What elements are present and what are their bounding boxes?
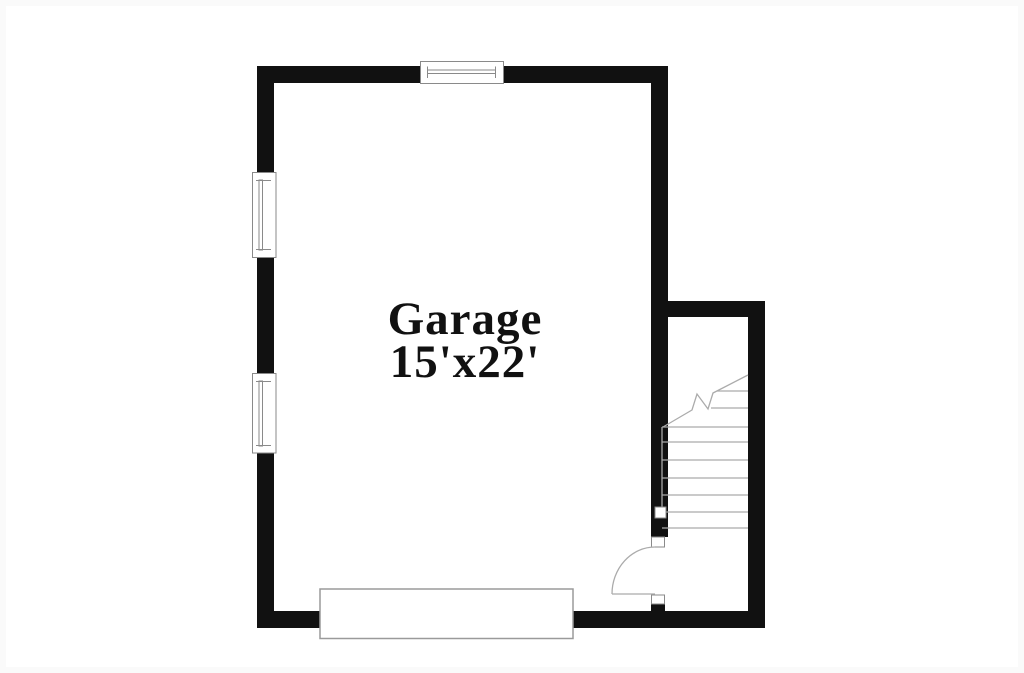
- door-jamb-top: [652, 537, 665, 547]
- left-window-upper-glazing: [259, 180, 263, 250]
- stair-break-line: [663, 375, 748, 427]
- door-jamb-bottom: [652, 595, 665, 604]
- left-window-upper-frame: [253, 173, 277, 258]
- stairwell-top-wall: [651, 301, 765, 317]
- left-window-lower: [253, 374, 277, 454]
- garage-door: [320, 589, 573, 639]
- door-swing-arc: [612, 547, 655, 594]
- room-dimensions: 15'x22': [390, 336, 541, 388]
- interior-door: [612, 537, 665, 604]
- top-window-glazing: [428, 70, 496, 74]
- stairwell-right-wall: [748, 301, 765, 628]
- left-wall: [257, 66, 274, 628]
- left-window-lower-frame: [253, 374, 277, 454]
- floorplan-drawing: Garage 15'x22': [0, 0, 1024, 673]
- top-window: [421, 62, 504, 84]
- left-window-upper: [253, 173, 277, 258]
- left-window-lower-glazing: [259, 381, 263, 446]
- floorplan-canvas: Garage 15'x22': [0, 0, 1024, 673]
- windows: [253, 62, 504, 454]
- stair-newel-post: [655, 507, 666, 518]
- staircase: [655, 375, 748, 528]
